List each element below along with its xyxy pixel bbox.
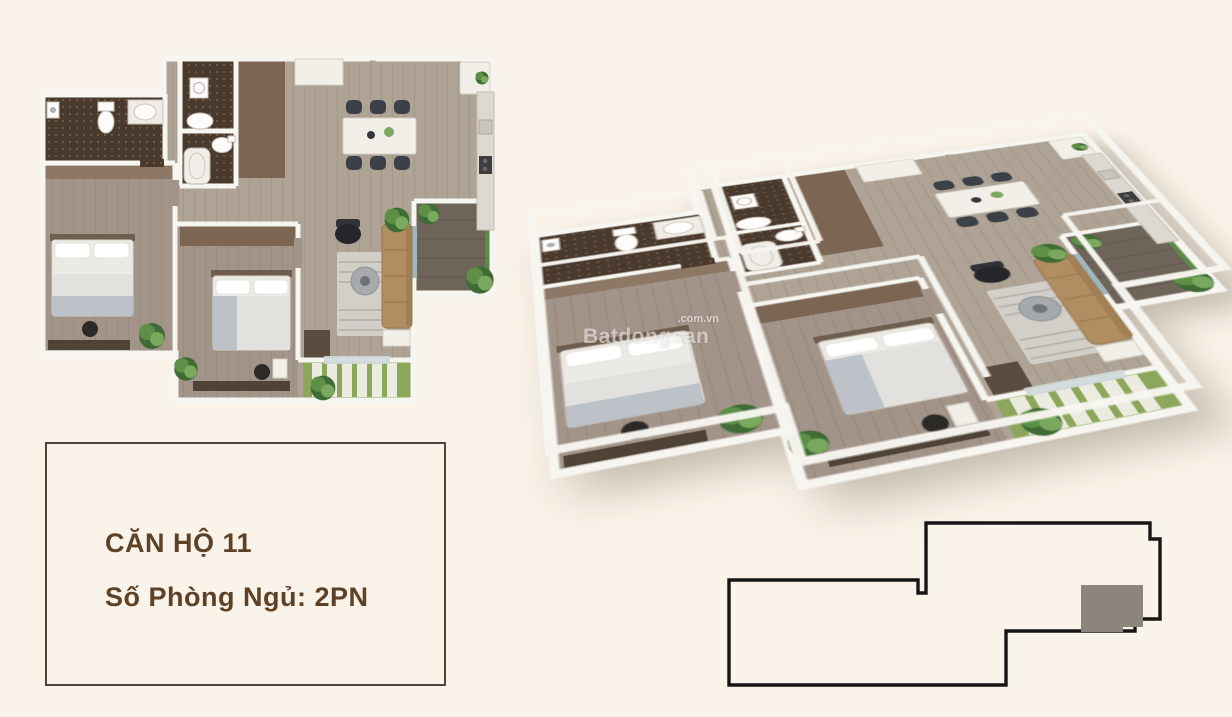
watermark-text: Batdongsan (583, 326, 733, 348)
unit-title: CĂN HỘ 11 (105, 528, 444, 559)
apartment-listing-page: .com.vn Batdongsan CĂN HỘ 11 Số Phòng Ng… (0, 0, 1232, 717)
building-key-plan (718, 512, 1184, 697)
watermark: .com.vn Batdongsan (583, 314, 733, 348)
unit-location-marker (1081, 585, 1143, 632)
floor-plan-2d (40, 28, 510, 430)
watermark-suffix: .com.vn (677, 314, 719, 326)
unit-bedrooms: Số Phòng Ngủ: 2PN (105, 582, 444, 613)
unit-info-card: CĂN HỘ 11 Số Phòng Ngủ: 2PN (45, 442, 446, 686)
